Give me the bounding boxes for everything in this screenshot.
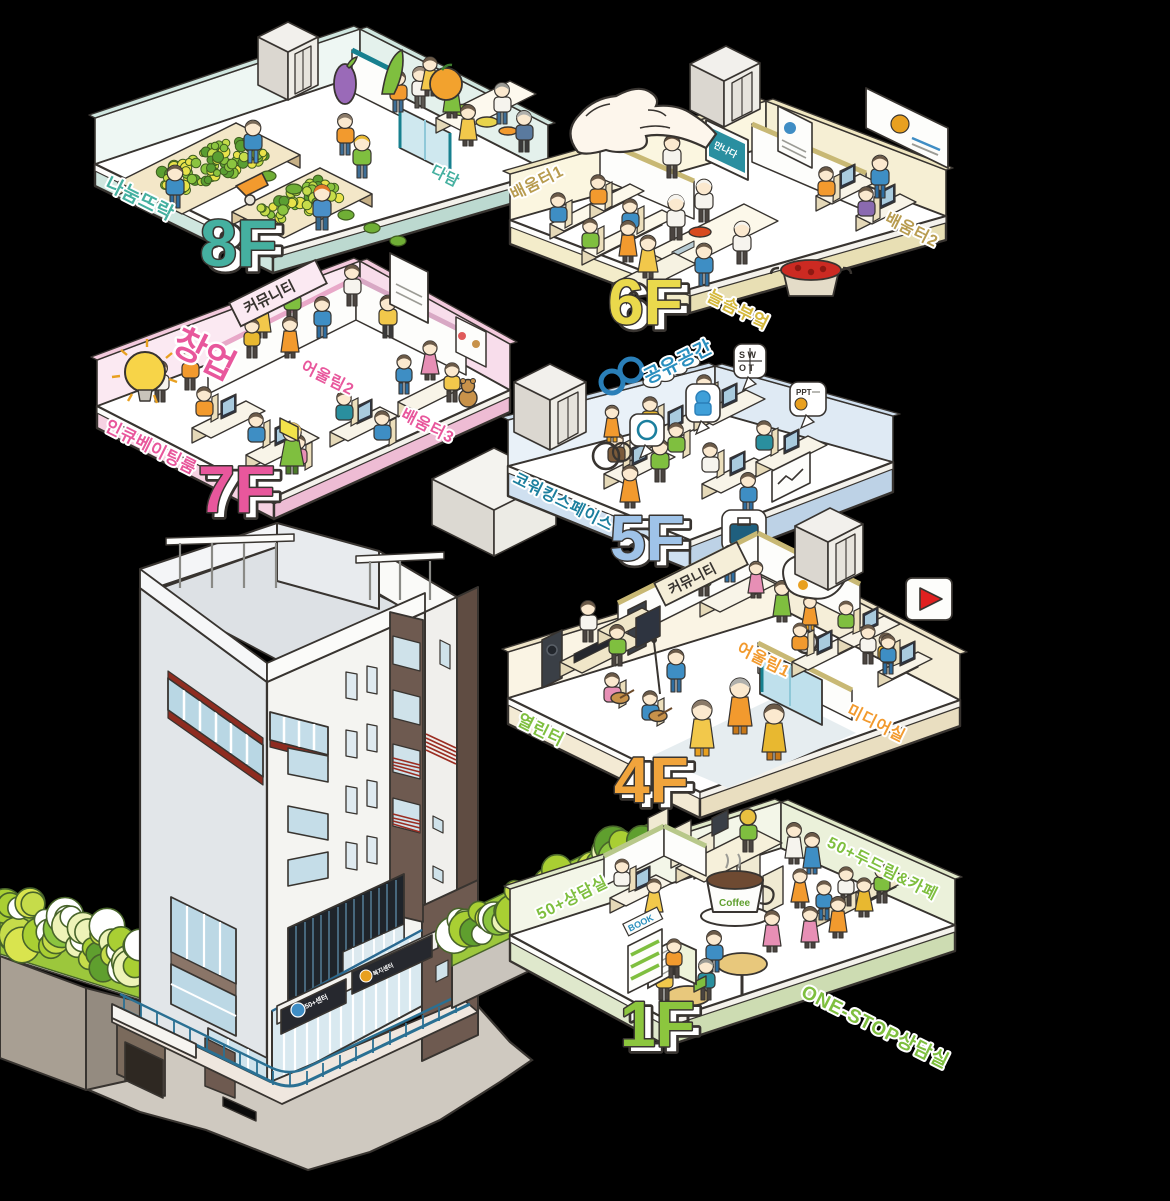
svg-text:6F: 6F [608, 266, 683, 338]
svg-text:4F: 4F [614, 744, 689, 816]
svg-text:PPT: PPT [796, 388, 812, 397]
svg-text:7F: 7F [198, 452, 275, 526]
svg-text:S W: S W [739, 350, 757, 360]
svg-text:O T: O T [739, 363, 755, 373]
svg-text:5F: 5F [610, 502, 685, 574]
svg-text:8F: 8F [200, 206, 277, 280]
svg-text:Coffee: Coffee [719, 898, 751, 909]
svg-text:1F: 1F [620, 988, 695, 1060]
